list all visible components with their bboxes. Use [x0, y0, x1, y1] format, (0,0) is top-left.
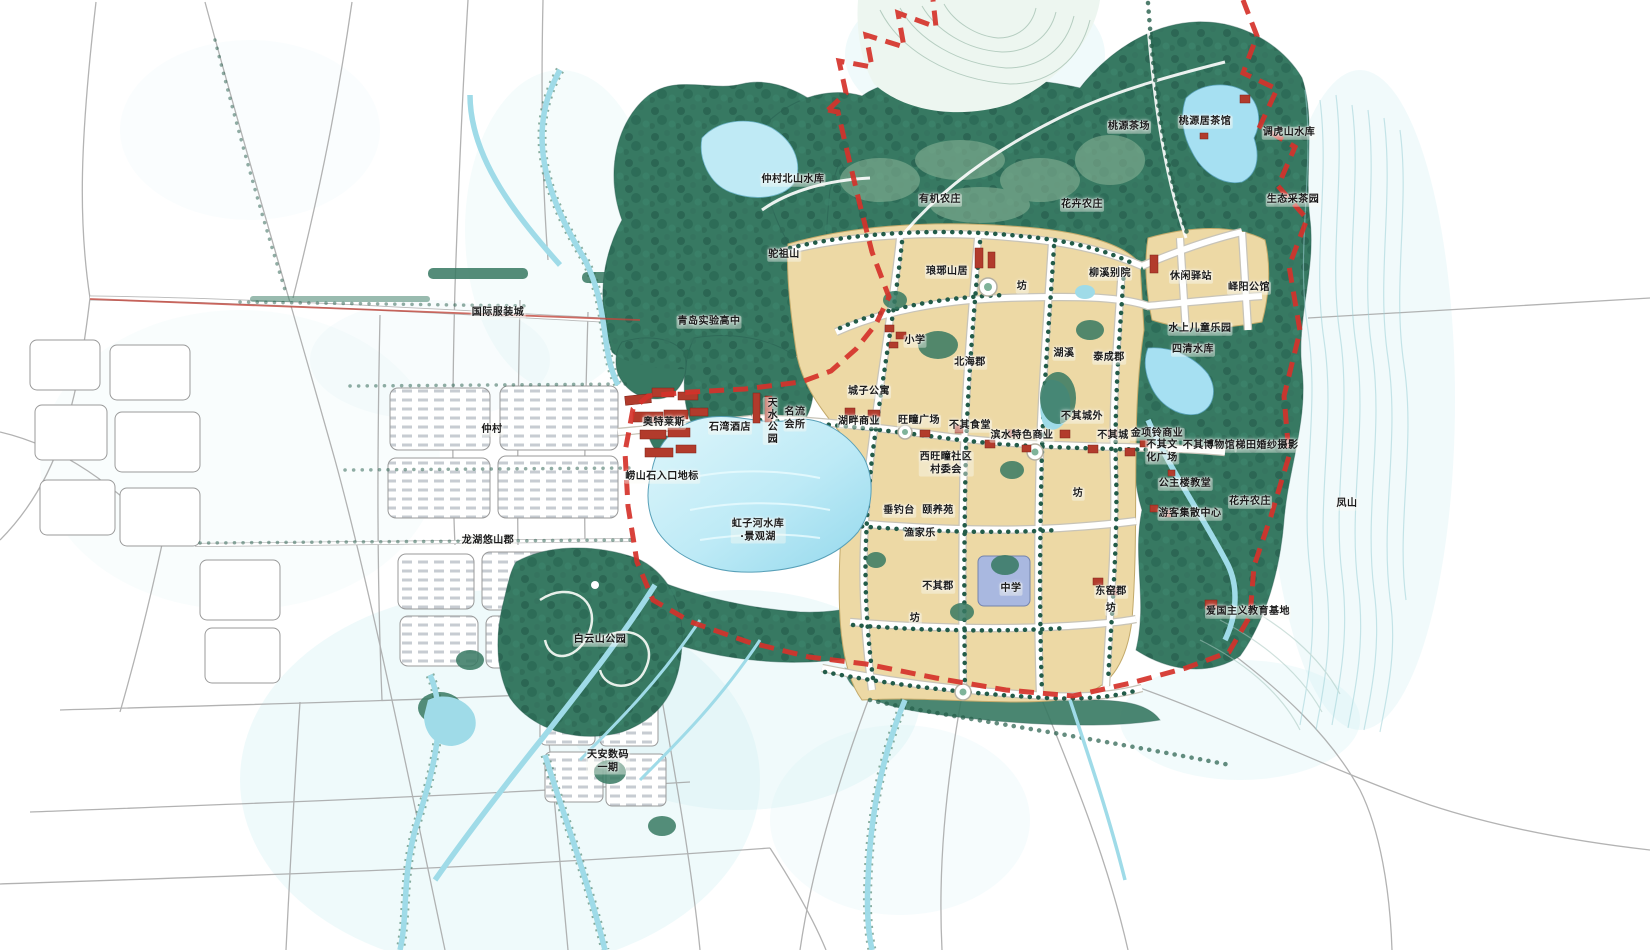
map-canvas: 国际服装城青岛实验高中仲村北山水库驼祖山有机农庄花卉农庄桃源茶场桃源居茶馆调虎山… — [0, 0, 1650, 950]
map-artwork — [0, 0, 1650, 950]
